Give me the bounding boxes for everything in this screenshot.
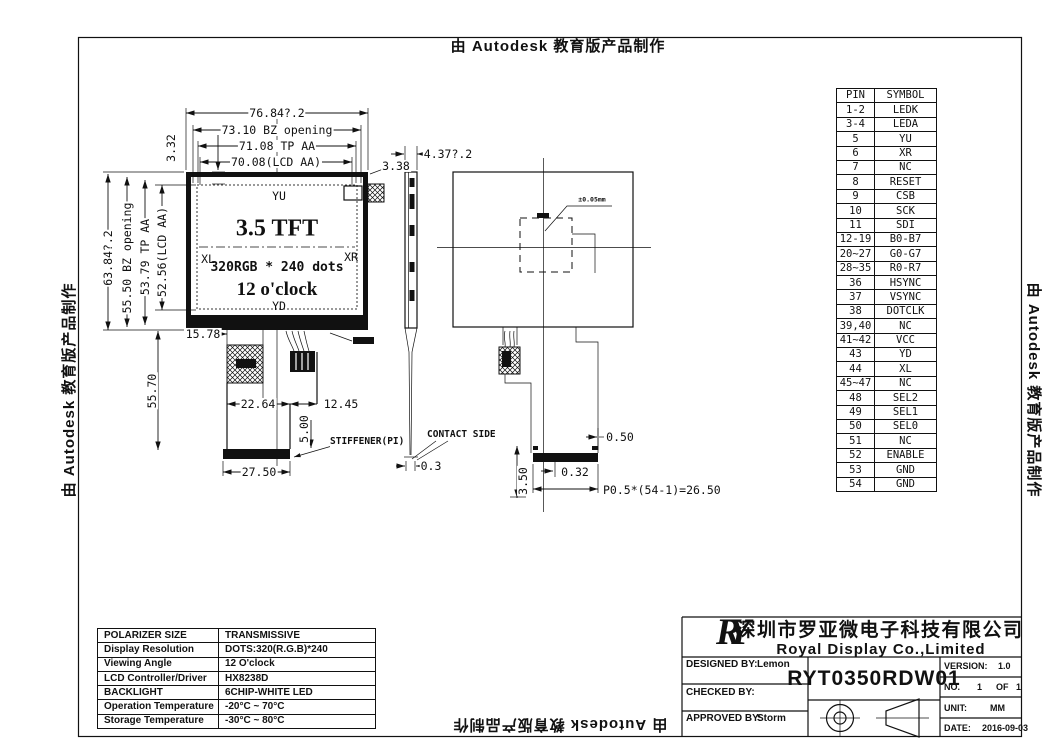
table-cell: 49: [837, 405, 875, 419]
dim-tp-aa-width: 71.08 TP AA: [238, 140, 316, 152]
table-cell: 36: [837, 276, 875, 290]
table-row: 3-4LEDA: [837, 117, 937, 131]
dim-stiffener-height: 5.00: [298, 414, 310, 444]
table-row: Storage Temperature-30°C ~ 80°C: [98, 714, 376, 728]
table-cell: 9: [837, 189, 875, 203]
table-cell: SCK: [875, 204, 937, 218]
table-cell: 51: [837, 434, 875, 448]
sheet-of-value: 1: [1016, 683, 1021, 692]
table-cell: VSYNC: [875, 290, 937, 304]
table-row: 49SEL1: [837, 405, 937, 419]
pin-table: PIN SYMBOL 1-2LEDK3-4LEDA5YU6XR7NC8RESET…: [836, 88, 937, 492]
dim-module-thickness: 4.37?.2: [423, 148, 473, 160]
dim-top-margin: 3.32: [165, 133, 177, 163]
table-row: Viewing Angle12 O'clock: [98, 657, 376, 671]
company-logo: RY: [716, 614, 739, 653]
table-row: 38DOTCLK: [837, 304, 937, 318]
sheet-of-label: OF: [996, 683, 1009, 692]
table-cell: 10: [837, 204, 875, 218]
watermark-top: 由 Autodesk 教育版产品制作: [451, 39, 666, 55]
table-cell: 41~42: [837, 333, 875, 347]
table-cell: NC: [875, 434, 937, 448]
table-row: 9CSB: [837, 189, 937, 203]
dim-bz-opening-height: 55.50 BZ opening: [121, 202, 133, 315]
table-row: 51NC: [837, 434, 937, 448]
table-row: 44XL: [837, 362, 937, 376]
date-value: 2016-09-03: [982, 724, 1028, 733]
table-cell: 12-19: [837, 232, 875, 246]
table-row: Display ResolutionDOTS:320(R.G.B)*240: [98, 643, 376, 657]
dim-lcd-aa-width: 70.08(LCD AA): [230, 156, 322, 168]
dim-fpc-length: 55.70: [146, 373, 158, 410]
pin-table-header-symbol: SYMBOL: [875, 89, 937, 103]
table-row: 10SCK: [837, 204, 937, 218]
dim-pad-offset: 0.32: [560, 466, 590, 478]
watermark-left: 由 Autodesk 教育版产品制作: [62, 283, 78, 498]
dim-pad-end: 0.50: [605, 431, 635, 443]
dim-lcd-aa-height: 52.56(LCD AA): [156, 206, 168, 298]
table-row: 12-19B0-B7: [837, 232, 937, 246]
table-cell: HSYNC: [875, 276, 937, 290]
table-cell: 20~27: [837, 247, 875, 261]
table-cell: SEL2: [875, 391, 937, 405]
table-row: LCD Controller/DriverHX8238D: [98, 671, 376, 685]
version-label: VERSION:: [944, 662, 988, 671]
table-row: 28~35R0-R7: [837, 261, 937, 275]
table-cell: 50: [837, 419, 875, 433]
table-cell: VCC: [875, 333, 937, 347]
table-cell: HX8238D: [219, 671, 376, 685]
table-cell: YD: [875, 348, 937, 362]
table-cell: 52: [837, 448, 875, 462]
part-number: RYT0350RDW01: [787, 668, 960, 690]
table-cell: RESET: [875, 175, 937, 189]
table-row: 45~47NC: [837, 376, 937, 390]
table-cell: NC: [875, 319, 937, 333]
version-value: 1.0: [998, 662, 1011, 671]
table-row: Operation Temperature-20°C ~ 70°C: [98, 700, 376, 714]
table-row: 52ENABLE: [837, 448, 937, 462]
dim-fpc-offset: 15.78: [185, 328, 222, 340]
table-cell: SDI: [875, 218, 937, 232]
table-row: 50SEL0: [837, 419, 937, 433]
table-cell: GND: [875, 463, 937, 477]
table-cell: YU: [875, 132, 937, 146]
table-row: 20~27G0-G7: [837, 247, 937, 261]
dim-pad-height: 3.50: [517, 466, 529, 496]
table-row: 11SDI: [837, 218, 937, 232]
table-cell: 38: [837, 304, 875, 318]
dim-overall-height: 63.84?.2: [102, 229, 114, 286]
dim-tail-thickness: 0.3: [420, 460, 443, 472]
table-row: 37VSYNC: [837, 290, 937, 304]
table-row: 6XR: [837, 146, 937, 160]
table-cell: XR: [875, 146, 937, 160]
spec-table: POLARIZER SIZETRANSMISSIVEDisplay Resolu…: [97, 628, 376, 729]
table-cell: DOTCLK: [875, 304, 937, 318]
dim-right-margin: 3.38: [381, 160, 411, 172]
table-row: 5YU: [837, 132, 937, 146]
table-cell: 7: [837, 160, 875, 174]
table-cell: 6CHIP-WHITE LED: [219, 686, 376, 700]
table-row: 7NC: [837, 160, 937, 174]
table-cell: LCD Controller/Driver: [98, 671, 219, 685]
table-cell: 11: [837, 218, 875, 232]
table-cell: -30°C ~ 80°C: [219, 714, 376, 728]
date-label: DATE:: [944, 724, 971, 733]
designed-by-value: Lemon: [757, 660, 790, 671]
table-row: 53GND: [837, 463, 937, 477]
sheet-no-label: NO.: [944, 683, 960, 692]
table-cell: R0-R7: [875, 261, 937, 275]
table-cell: XL: [875, 362, 937, 376]
approved-by-label: APPROVED BY:: [686, 714, 761, 725]
table-cell: ENABLE: [875, 448, 937, 462]
resolution-label: 320RGB * 240 dots: [210, 261, 343, 275]
first-angle-projection-icon: [820, 699, 929, 737]
table-cell: 39,40: [837, 319, 875, 333]
table-cell: Operation Temperature: [98, 700, 219, 714]
table-cell: BACKLIGHT: [98, 686, 219, 700]
unit-value: MM: [990, 704, 1005, 713]
table-cell: 37: [837, 290, 875, 304]
table-cell: 8: [837, 175, 875, 189]
back-view-drawing: [437, 158, 651, 512]
viewing-direction-label: 12 o'clock: [237, 280, 318, 300]
table-row: BACKLIGHT6CHIP-WHITE LED: [98, 686, 376, 700]
table-cell: 3-4: [837, 117, 875, 131]
table-row: 36HSYNC: [837, 276, 937, 290]
table-cell: B0-B7: [875, 232, 937, 246]
sheet-no-value: 1: [977, 683, 982, 692]
table-cell: Display Resolution: [98, 643, 219, 657]
electrode-label-yu: YU: [271, 190, 287, 202]
checked-by-label: CHECKED BY:: [686, 688, 755, 699]
table-cell: 45~47: [837, 376, 875, 390]
table-row: 8RESET: [837, 175, 937, 189]
dim-pad-pitch: P0.5*(54-1)=26.50: [602, 484, 722, 496]
watermark-bottom: 由 Autodesk 教育版产品制作: [453, 716, 668, 732]
table-row: 43YD: [837, 348, 937, 362]
table-cell: 43: [837, 348, 875, 362]
dim-fpc-width: 12.45: [323, 398, 360, 410]
contact-side-label: CONTACT SIDE: [427, 430, 496, 440]
table-cell: DOTS:320(R.G.B)*240: [219, 643, 376, 657]
table-row: 41~42VCC: [837, 333, 937, 347]
engineering-drawing-page: { "watermark": { "text": "由 Autodesk 教育版…: [0, 0, 1060, 749]
table-cell: G0-G7: [875, 247, 937, 261]
electrode-label-xr: XR: [343, 251, 359, 263]
table-cell: 53: [837, 463, 875, 477]
dim-stiffener-offset: 22.64: [240, 398, 277, 410]
table-cell: 6: [837, 146, 875, 160]
table-cell: -20°C ~ 70°C: [219, 700, 376, 714]
dim-bz-opening-width: 73.10 BZ opening: [221, 124, 334, 136]
table-row: 39,40NC: [837, 319, 937, 333]
company-name-en: Royal Display Co.,Limited: [776, 642, 985, 658]
table-cell: 28~35: [837, 261, 875, 275]
table-cell: Viewing Angle: [98, 657, 219, 671]
stiffener-label: STIFFENER(PI): [330, 437, 404, 447]
table-row: 1-2LEDK: [837, 103, 937, 117]
designed-by-label: DESIGNED BY:: [686, 660, 758, 671]
table-cell: 44: [837, 362, 875, 376]
table-cell: NC: [875, 160, 937, 174]
dim-stiffener-width: 27.50: [241, 466, 278, 478]
table-cell: 5: [837, 132, 875, 146]
table-cell: TRANSMISSIVE: [219, 629, 376, 643]
table-row: 54GND: [837, 477, 937, 491]
unit-label: UNIT:: [944, 704, 967, 713]
pin-table-header: PIN SYMBOL: [837, 89, 937, 103]
pin-table-header-pin: PIN: [837, 89, 875, 103]
table-cell: CSB: [875, 189, 937, 203]
table-row: POLARIZER SIZETRANSMISSIVE: [98, 629, 376, 643]
table-cell: LEDA: [875, 117, 937, 131]
table-cell: NC: [875, 376, 937, 390]
table-cell: 1-2: [837, 103, 875, 117]
table-cell: 12 O'clock: [219, 657, 376, 671]
table-cell: SEL0: [875, 419, 937, 433]
back-view-annotation: ±0.05mm: [578, 197, 605, 204]
watermark-right: 由 Autodesk 教育版产品制作: [1025, 283, 1041, 498]
dim-tp-aa-height: 53.79 TP AA: [139, 218, 151, 296]
screen-size-label: 3.5 TFT: [236, 216, 318, 241]
table-cell: 54: [837, 477, 875, 491]
dim-overall-width: 76.84?.2: [248, 107, 305, 119]
electrode-label-yd: YD: [271, 300, 287, 312]
table-cell: GND: [875, 477, 937, 491]
table-cell: 48: [837, 391, 875, 405]
table-cell: POLARIZER SIZE: [98, 629, 219, 643]
side-view-drawing: [391, 146, 448, 471]
company-name-cn: 深圳市罗亚微电子科技有限公司: [736, 621, 1023, 641]
table-cell: Storage Temperature: [98, 714, 219, 728]
table-cell: LEDK: [875, 103, 937, 117]
table-row: 48SEL2: [837, 391, 937, 405]
approved-by-value: Storm: [757, 714, 786, 725]
table-cell: SEL1: [875, 405, 937, 419]
